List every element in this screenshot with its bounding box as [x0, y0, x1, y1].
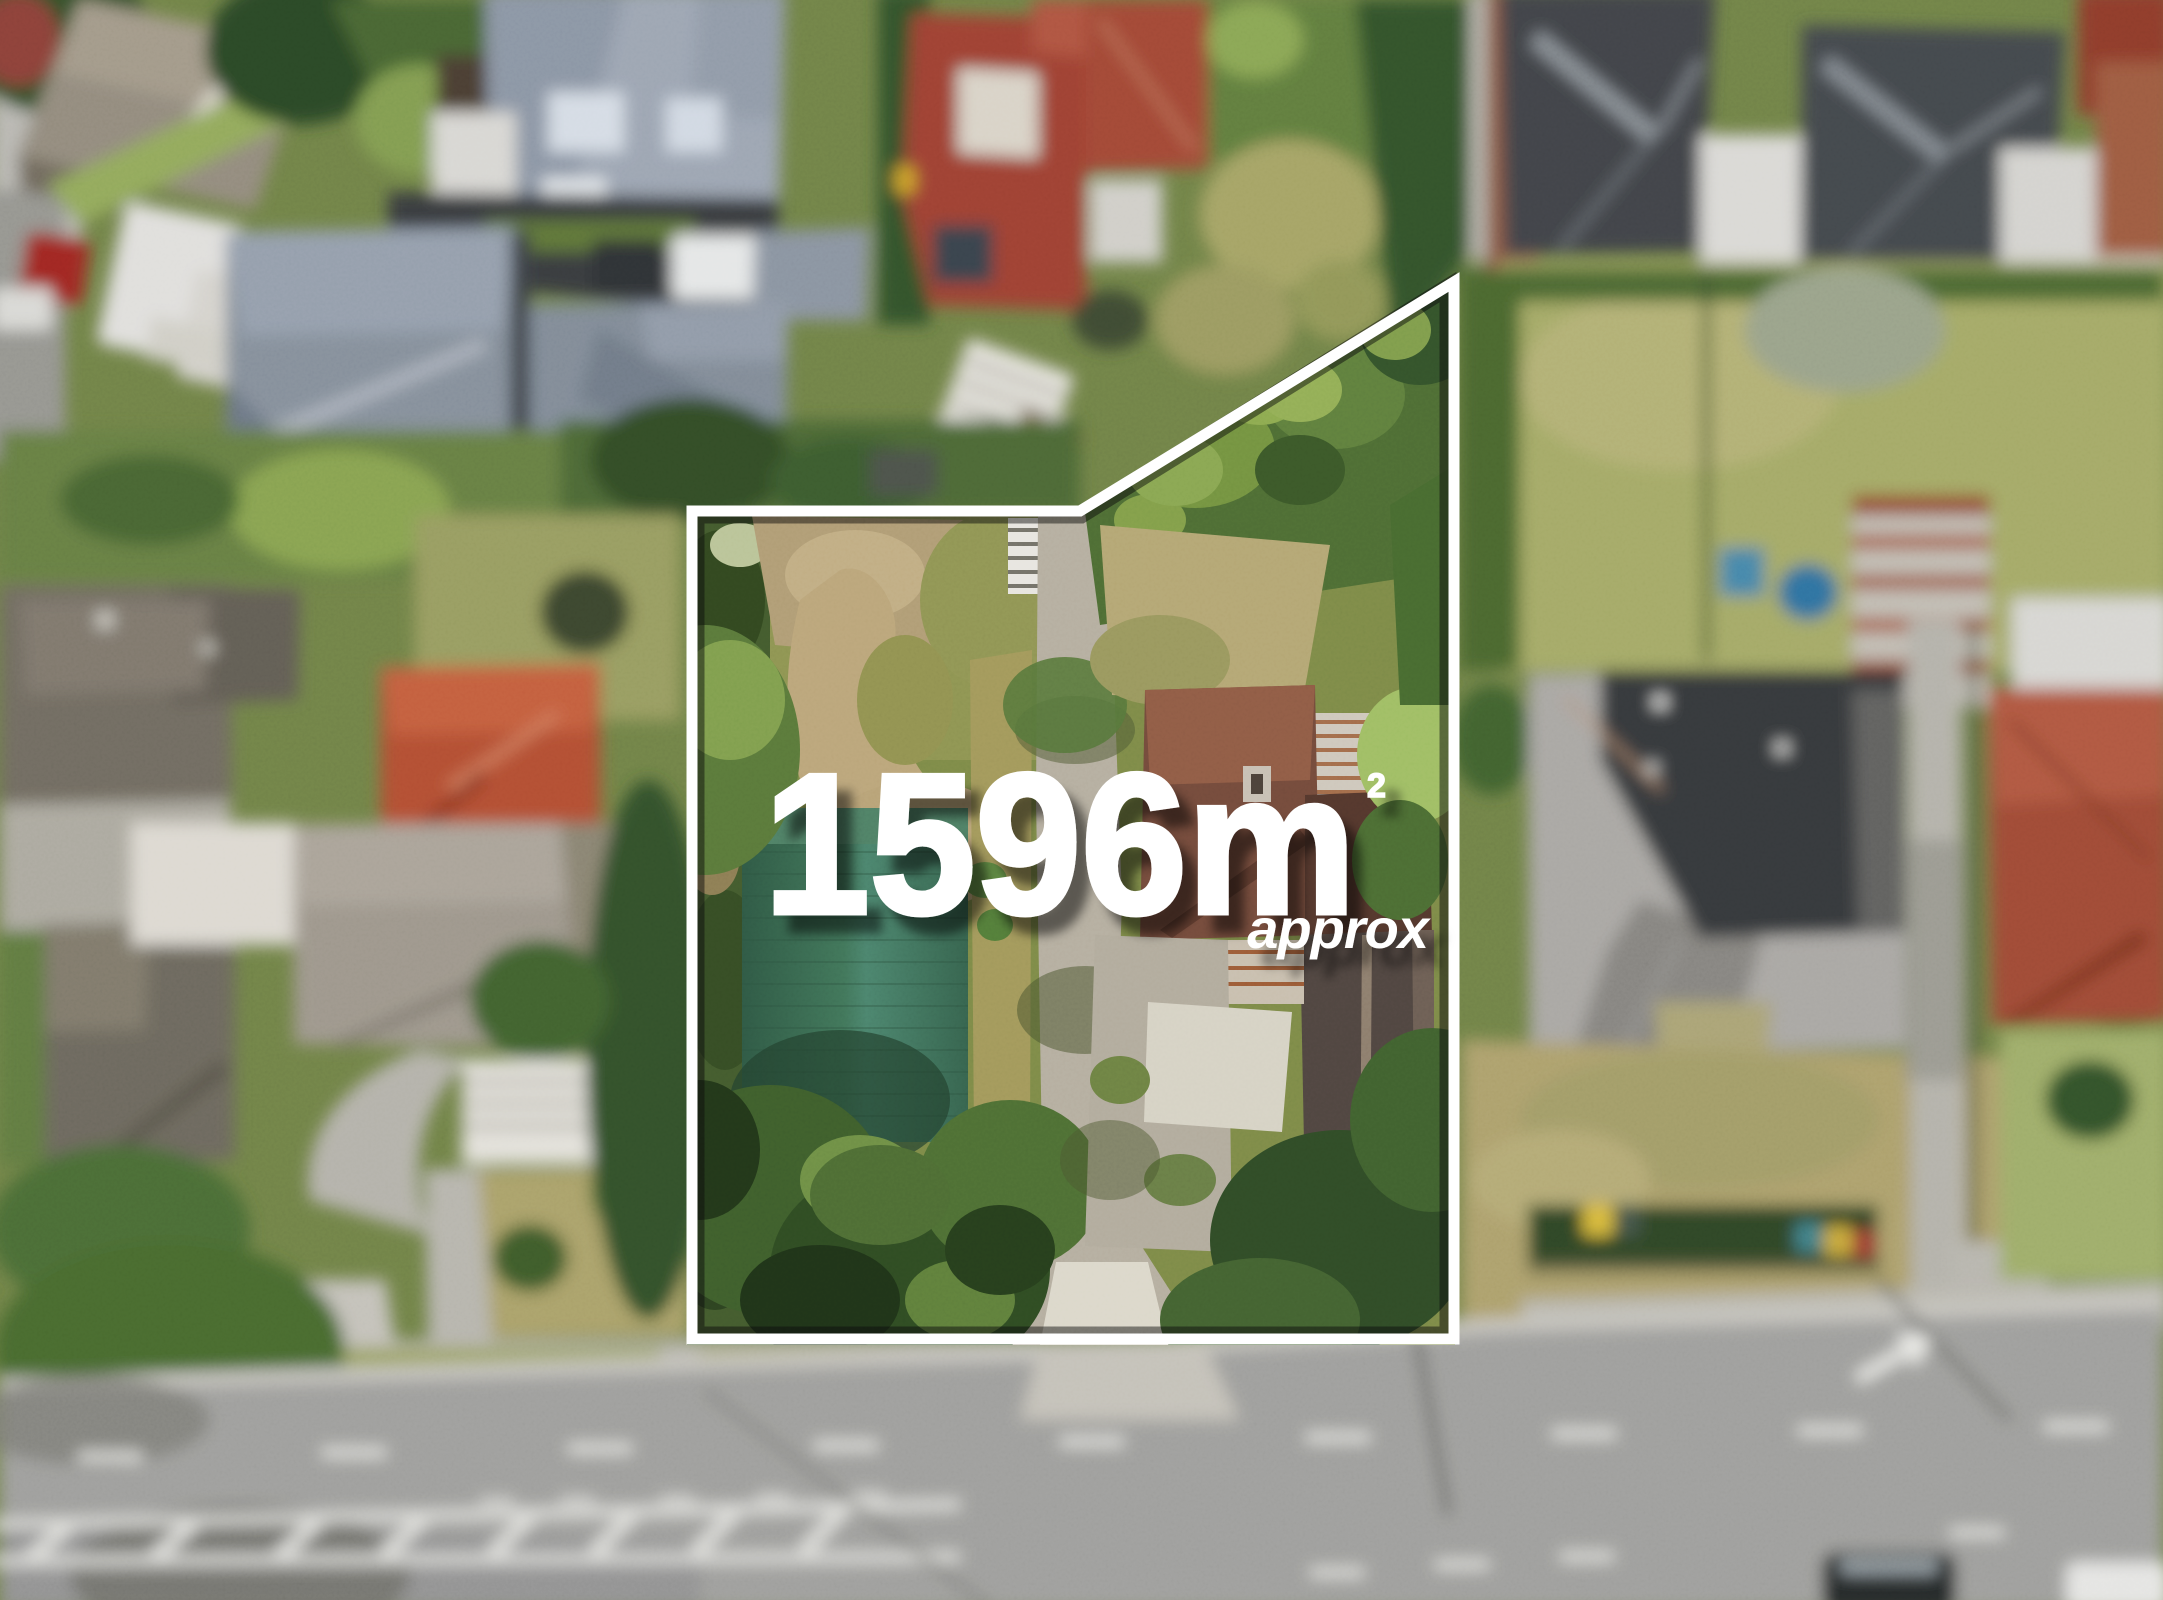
svg-text:2: 2: [1367, 767, 1386, 805]
svg-text:approx: approx: [1247, 897, 1432, 960]
